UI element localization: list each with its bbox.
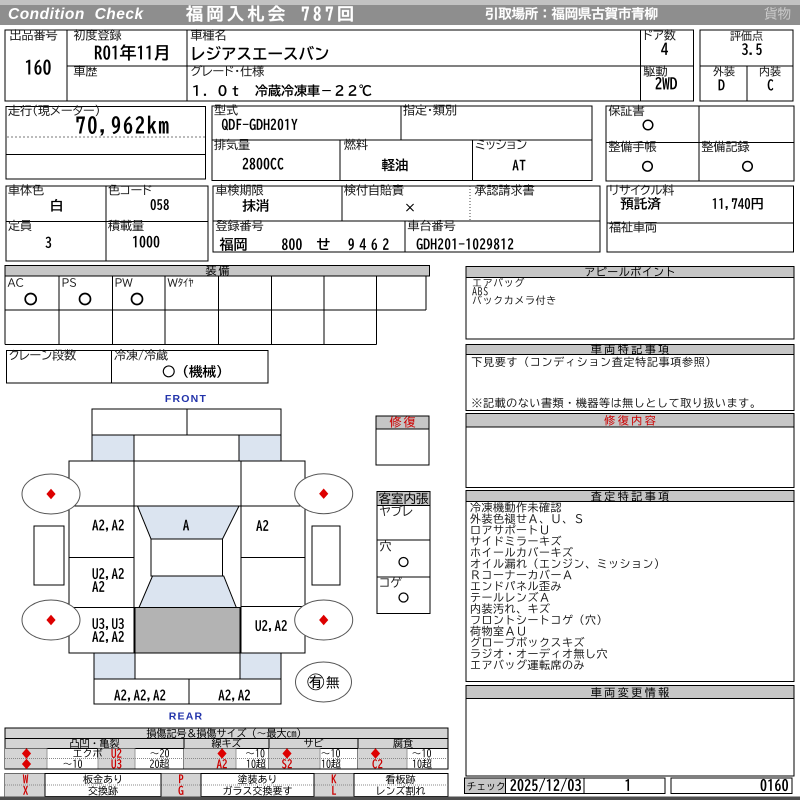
- svg-text:REAR: REAR: [169, 711, 204, 723]
- svg-text:Condition Check: Condition Check: [8, 6, 145, 23]
- svg-text:FRONT: FRONT: [165, 393, 207, 405]
